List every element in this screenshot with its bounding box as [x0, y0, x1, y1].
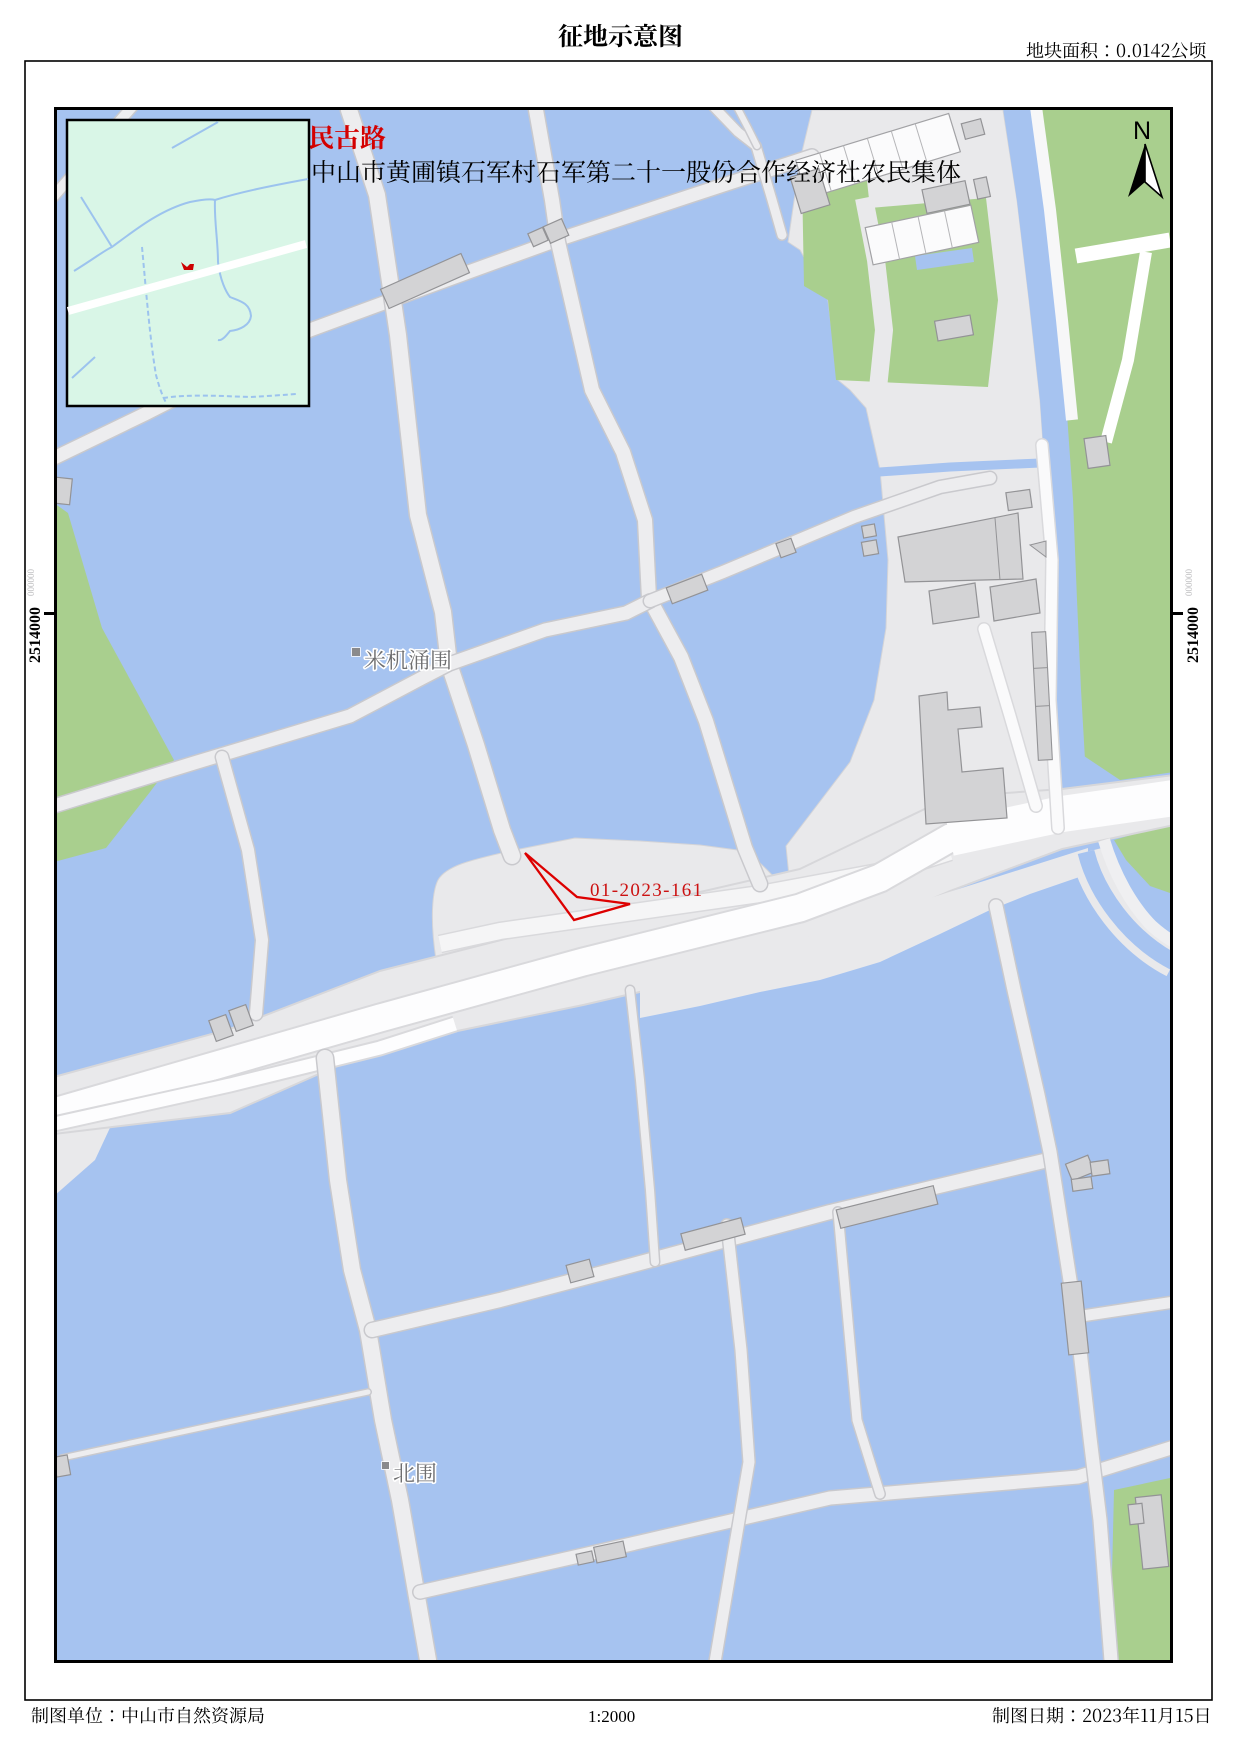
svg-text:000000: 000000	[26, 569, 36, 597]
svg-text:000000: 000000	[1184, 569, 1194, 597]
svg-text:1:2000: 1:2000	[588, 1707, 635, 1726]
svg-text:2514000: 2514000	[27, 607, 44, 663]
svg-text:N: N	[1133, 117, 1151, 145]
svg-text:2514000: 2514000	[1185, 607, 1202, 663]
svg-text:01-2023-161: 01-2023-161	[590, 880, 704, 901]
